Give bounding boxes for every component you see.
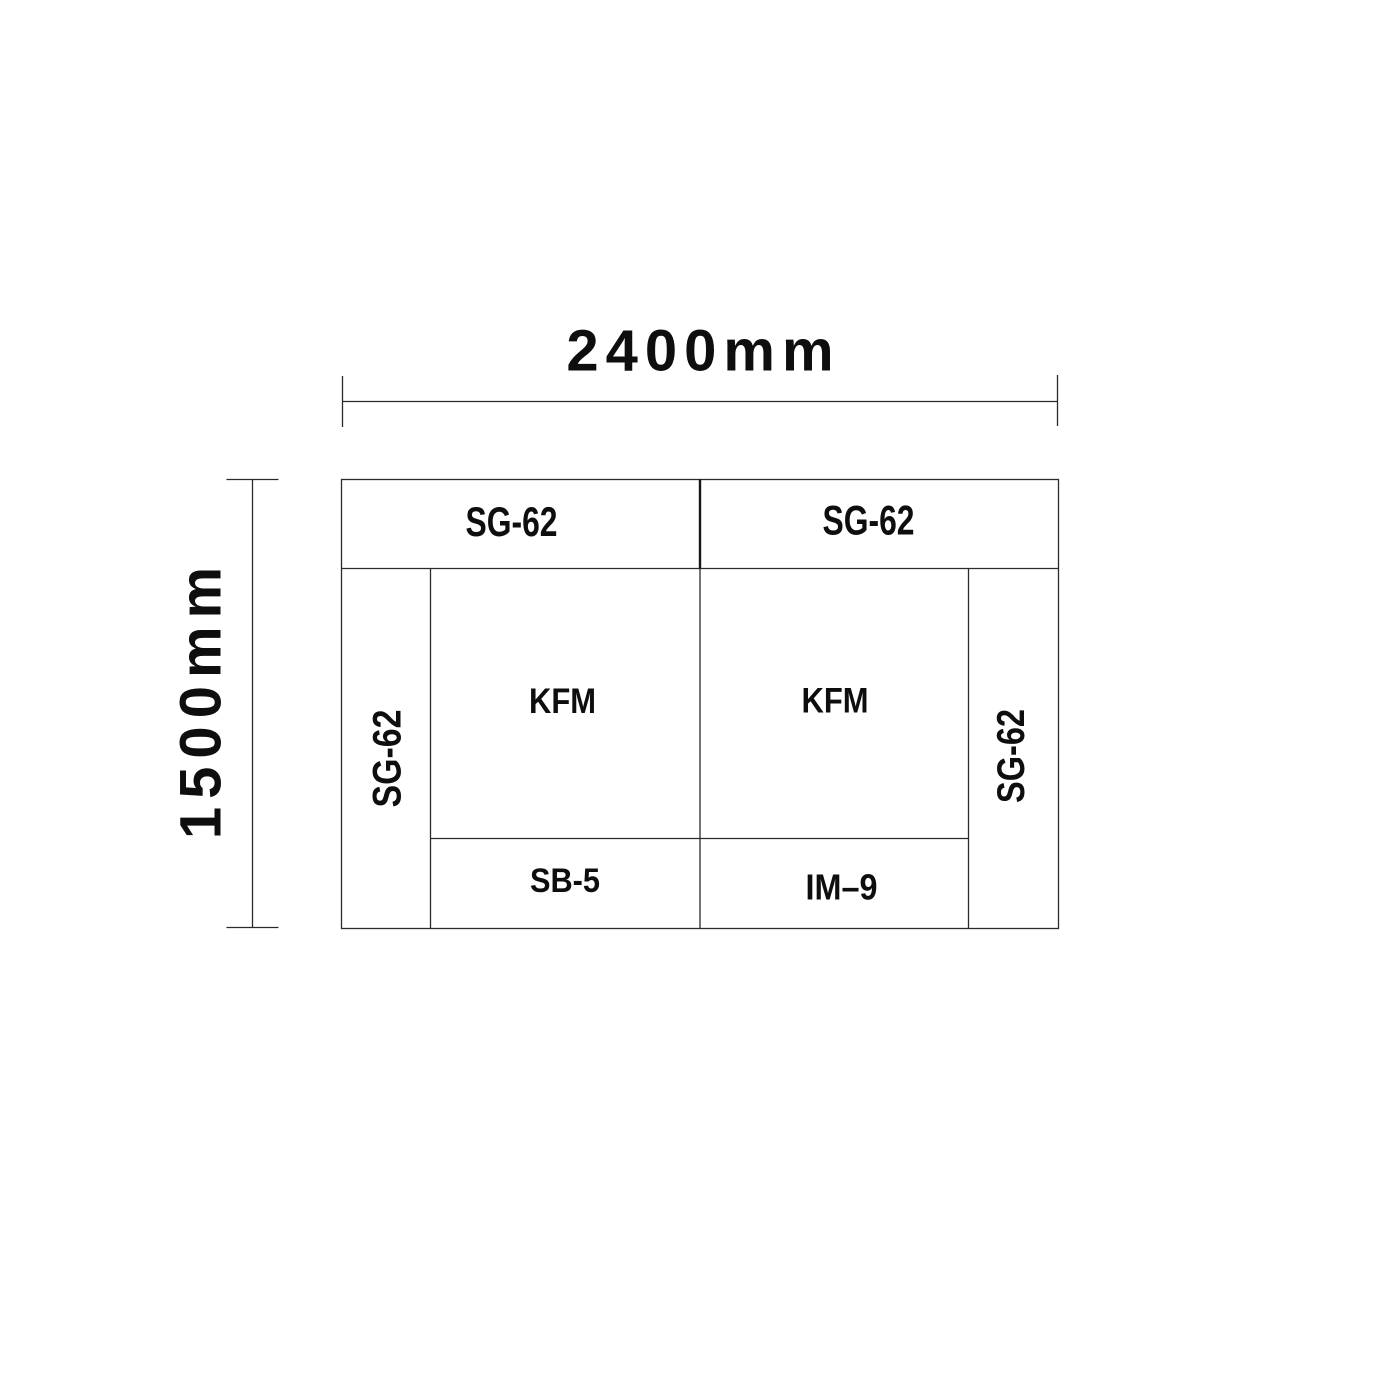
svg-text:SG-62: SG-62 (466, 498, 558, 545)
svg-text:1500mm: 1500mm (169, 559, 234, 839)
svg-text:SG-62: SG-62 (823, 497, 915, 544)
svg-text:SG-62: SG-62 (366, 710, 410, 808)
svg-text:KFM: KFM (802, 682, 869, 721)
svg-text:2400mm: 2400mm (566, 319, 840, 384)
svg-text:KFM: KFM (529, 682, 596, 721)
svg-text:SB-5: SB-5 (530, 862, 600, 900)
svg-text:SG-62: SG-62 (990, 709, 1033, 803)
svg-text:IM–9: IM–9 (806, 867, 878, 908)
